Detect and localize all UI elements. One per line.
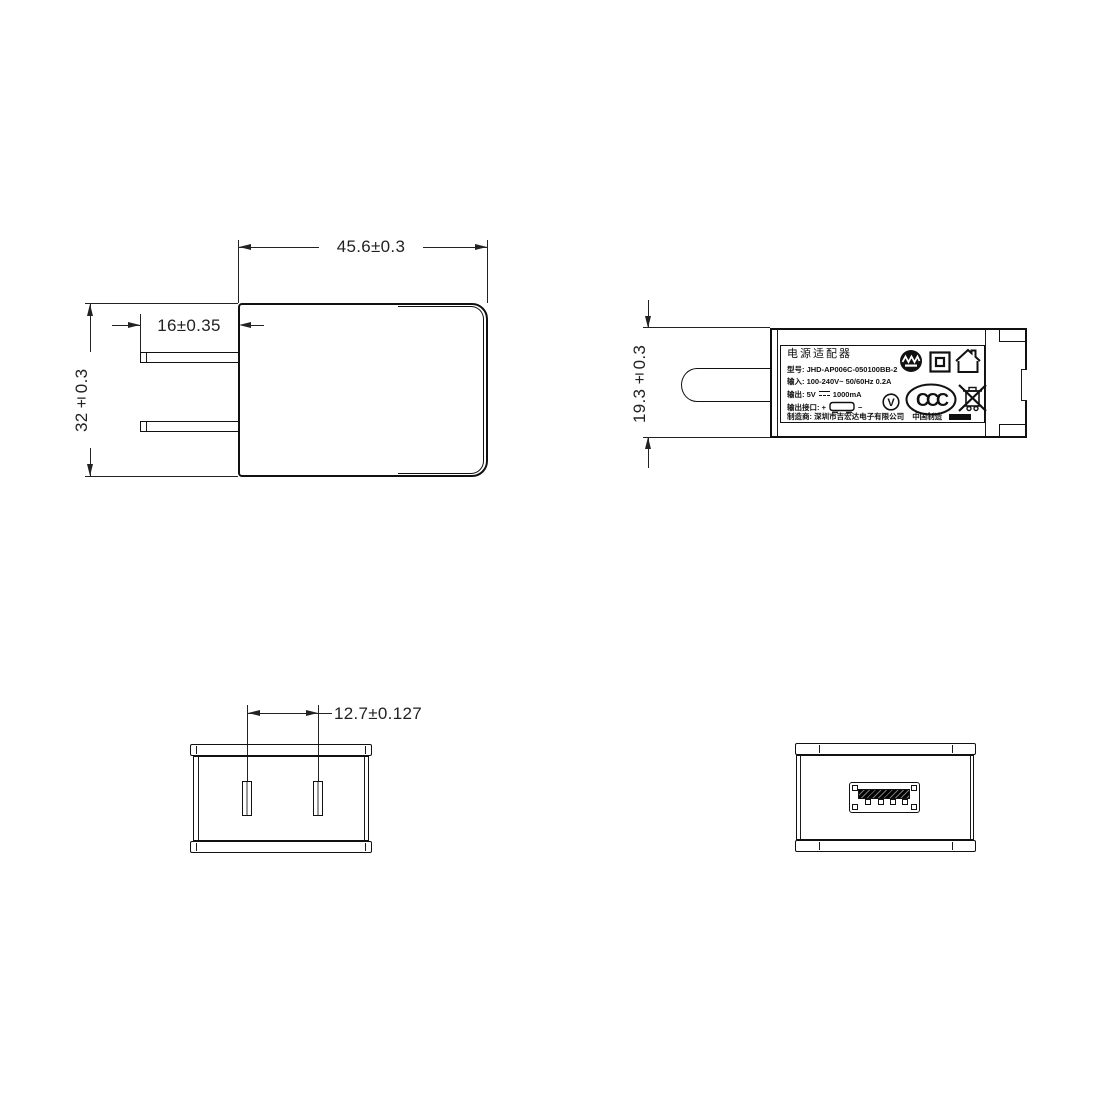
body-inner-line: [800, 756, 801, 839]
cap-seam-line: [365, 843, 366, 851]
manufacturer-label: 制造商:: [787, 412, 812, 421]
usb-a-port: [849, 782, 920, 813]
prong-slot-left: [242, 781, 252, 816]
arrowhead-icon: [475, 244, 487, 250]
dim-prong-text: 16±0.35: [142, 316, 236, 336]
rating-label: 电源适配器 型号: JHD-AP006C-050100BB-2 输入: 100-…: [780, 345, 985, 423]
label-model-row: 型号: JHD-AP006C-050100BB-2: [787, 366, 897, 374]
cap-seam-line: [196, 746, 197, 754]
dc-symbol-icon: [818, 390, 831, 398]
arrowhead-icon: [128, 322, 140, 328]
port-label: 输出接口:: [787, 403, 820, 412]
end-cap-lip-bottom: [999, 424, 1025, 436]
dim-pin-spacing-text: 12.7±0.127: [334, 704, 422, 724]
end-cap-lip-top: [999, 330, 1025, 342]
output-voltage: 5V: [807, 390, 816, 399]
model-value: JHD-AP006C-050100BB-2: [807, 365, 898, 374]
end-notch-line: [1021, 400, 1027, 401]
ext-line: [140, 314, 141, 352]
cap-seam-line: [952, 745, 953, 753]
usb-contact-pin: [902, 799, 908, 805]
arrowhead-icon: [248, 710, 260, 716]
class-ii-icon: [929, 351, 951, 373]
thermal-cutoff-icon: [899, 349, 923, 373]
cap-top: [190, 744, 372, 756]
cap-top: [795, 743, 976, 755]
adapter-body-inner-line: [398, 306, 484, 474]
indoor-use-only-icon: [954, 348, 982, 374]
usb-corner-tab: [911, 804, 917, 810]
cap-seam-line: [952, 842, 953, 850]
cap-bottom: [795, 840, 976, 852]
efficiency-level-v-icon: V: [882, 393, 900, 411]
manufacturer-value: 深圳市吉宏达电子有限公司: [814, 412, 904, 421]
dim-width-text: 45.6±0.3: [318, 237, 424, 257]
usb-tongue: [858, 789, 910, 799]
ext-line: [643, 437, 770, 438]
dim-thickness-text: 19.3±0.3: [630, 337, 649, 431]
prong-side-view: [681, 368, 771, 402]
cap-seam-line: [196, 843, 197, 851]
output-label: 输出:: [787, 390, 805, 399]
body-inner-line: [198, 757, 199, 840]
arrowhead-icon: [87, 304, 93, 316]
ccc-text: CCC: [916, 390, 949, 410]
polarity-plus: +: [822, 403, 826, 412]
dim-line: [248, 713, 332, 714]
technical-drawing-canvas: 45.6±0.3 16±0.35 32±0.3: [0, 0, 1100, 1100]
end-notch-line: [1021, 369, 1027, 370]
usb-contact-pin: [890, 799, 896, 805]
prong-slot-core: [246, 782, 248, 815]
prong-upper: [140, 352, 239, 363]
weee-crossed-bin-icon: [956, 380, 989, 414]
ext-line: [643, 327, 770, 328]
body-inner-line: [364, 757, 365, 840]
label-product-name: 电源适配器: [787, 348, 852, 360]
face-seam-line: [777, 330, 778, 436]
prong-tip-line: [146, 353, 147, 362]
arrowhead-icon: [239, 244, 251, 250]
ext-line: [487, 240, 488, 303]
usb-corner-tab: [852, 804, 858, 810]
arrowhead-icon: [87, 464, 93, 476]
usb-corner-tab: [911, 785, 917, 791]
prong-lower: [140, 421, 239, 432]
dim-height-text: 32±0.3: [72, 352, 91, 448]
cap-seam-line: [819, 842, 820, 850]
end-notch-line: [1021, 369, 1022, 401]
arrowhead-icon: [645, 437, 651, 449]
efficiency-v-text: V: [887, 397, 895, 409]
polarity-minus: −: [858, 403, 862, 412]
input-value: 100-240V~ 50/60Hz 0.2A: [807, 377, 892, 386]
label-output-row: 输出: 5V1000mA: [787, 390, 862, 399]
prong-slot-core: [317, 782, 319, 815]
cap-seam-line: [365, 746, 366, 754]
arrowhead-icon: [306, 710, 318, 716]
usb-contact-pin: [878, 799, 884, 805]
body-inner-line: [970, 756, 971, 839]
usb-contact-pin: [865, 799, 871, 805]
plug-face-body: [193, 756, 369, 841]
output-current: 1000mA: [833, 390, 862, 399]
prong-slot-right: [313, 781, 323, 816]
end-notch: [1023, 369, 1029, 401]
arrowhead-icon: [645, 316, 651, 328]
ccc-certification-icon: CCC: [905, 383, 957, 416]
cap-bottom: [190, 841, 372, 853]
model-label: 型号:: [787, 365, 805, 374]
cap-seam-line: [819, 745, 820, 753]
ext-line: [85, 303, 238, 304]
dim-line: [239, 247, 319, 248]
label-input-row: 输入: 100-240V~ 50/60Hz 0.2A: [787, 378, 891, 386]
ext-line: [85, 476, 238, 477]
prong-tip-line: [146, 422, 147, 431]
input-label: 输入:: [787, 377, 805, 386]
